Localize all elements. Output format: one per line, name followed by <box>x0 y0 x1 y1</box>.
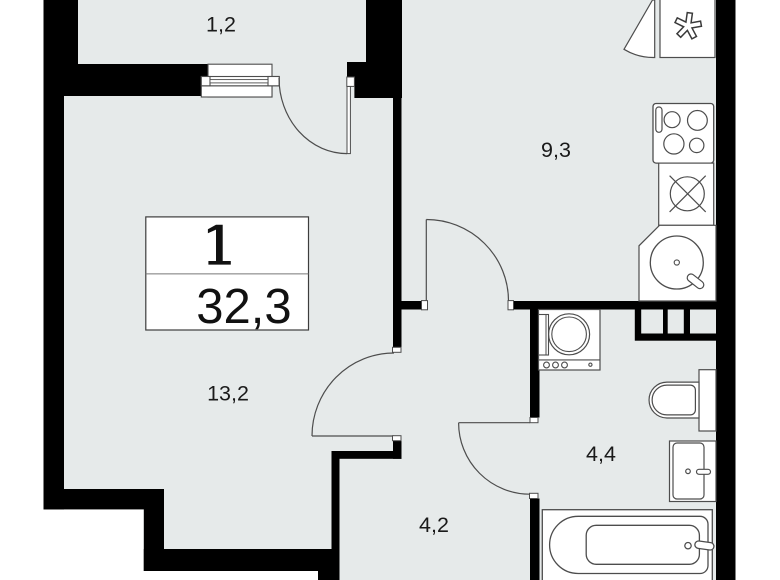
svg-text:9,3: 9,3 <box>541 138 571 162</box>
svg-text:4,2: 4,2 <box>419 513 449 537</box>
svg-text:4,4: 4,4 <box>586 442 616 466</box>
svg-text:32,3: 32,3 <box>196 280 291 334</box>
svg-text:1,2: 1,2 <box>206 13 236 37</box>
svg-text:13,2: 13,2 <box>207 382 249 406</box>
